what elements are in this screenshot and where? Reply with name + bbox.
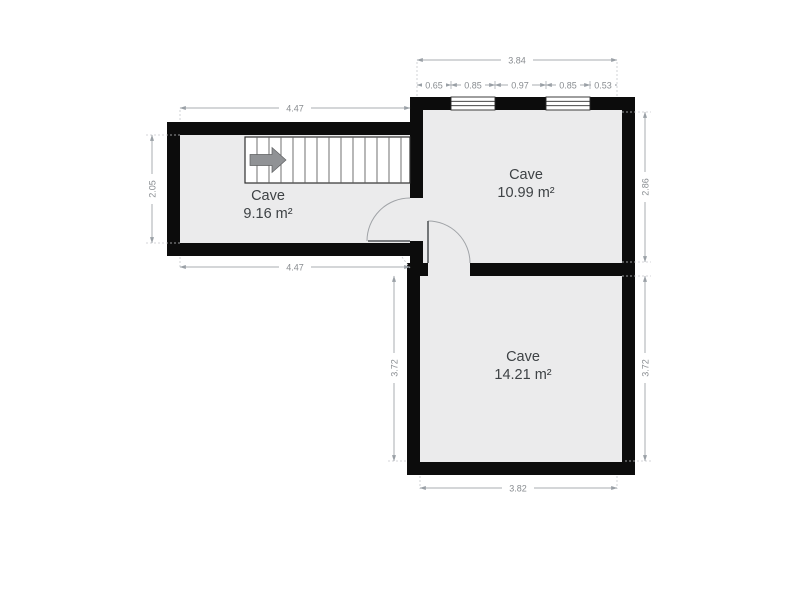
staircase bbox=[245, 137, 410, 183]
dimension-bottom-height-left: 3.72 bbox=[388, 353, 400, 383]
svg-text:3.72: 3.72 bbox=[390, 359, 400, 377]
svg-text:Cave: Cave bbox=[509, 167, 543, 183]
window-symbol-left bbox=[451, 97, 495, 110]
dimension-seg-4: 0.85 bbox=[559, 81, 577, 91]
dimension-top-total: 3.84 bbox=[501, 54, 533, 66]
svg-text:3.84: 3.84 bbox=[508, 56, 526, 66]
dimension-seg-1: 0.65 bbox=[425, 81, 443, 91]
window-symbol-right bbox=[546, 97, 590, 110]
svg-text:Cave: Cave bbox=[506, 349, 540, 365]
svg-text:2.86: 2.86 bbox=[641, 178, 651, 196]
svg-text:3.82: 3.82 bbox=[509, 484, 527, 494]
dimension-seg-2: 0.85 bbox=[464, 81, 482, 91]
svg-text:3.72: 3.72 bbox=[641, 359, 651, 377]
svg-text:4.47: 4.47 bbox=[286, 104, 304, 114]
dimension-seg-5: 0.53 bbox=[594, 81, 612, 91]
dimension-right-height-lower: 3.72 bbox=[639, 353, 651, 383]
dimension-left-height: 2.05 bbox=[146, 174, 158, 204]
dimension-left-width-top: 4.47 bbox=[279, 102, 311, 114]
svg-text:Cave: Cave bbox=[251, 188, 285, 204]
dimension-left-width-bottom: 4.47 bbox=[279, 261, 311, 273]
svg-text:2.05: 2.05 bbox=[148, 180, 158, 198]
svg-text:9.16 m²: 9.16 m² bbox=[243, 206, 292, 222]
dimension-right-height-upper: 2.86 bbox=[639, 172, 651, 202]
floor-plan-page: 3.84 0.65 0.85 0.97 0.85 0.53 4.47 4.47 bbox=[0, 0, 800, 600]
svg-text:14.21 m²: 14.21 m² bbox=[494, 367, 551, 383]
door-opening-2 bbox=[428, 263, 470, 276]
dimension-bottom-width: 3.82 bbox=[502, 482, 534, 494]
door-opening-1 bbox=[410, 198, 423, 241]
svg-text:10.99 m²: 10.99 m² bbox=[497, 185, 554, 201]
dimension-seg-3: 0.97 bbox=[511, 81, 529, 91]
floor-plan-drawing: 3.84 0.65 0.85 0.97 0.85 0.53 4.47 4.47 bbox=[0, 0, 800, 600]
background bbox=[0, 0, 800, 600]
svg-text:4.47: 4.47 bbox=[286, 263, 304, 273]
